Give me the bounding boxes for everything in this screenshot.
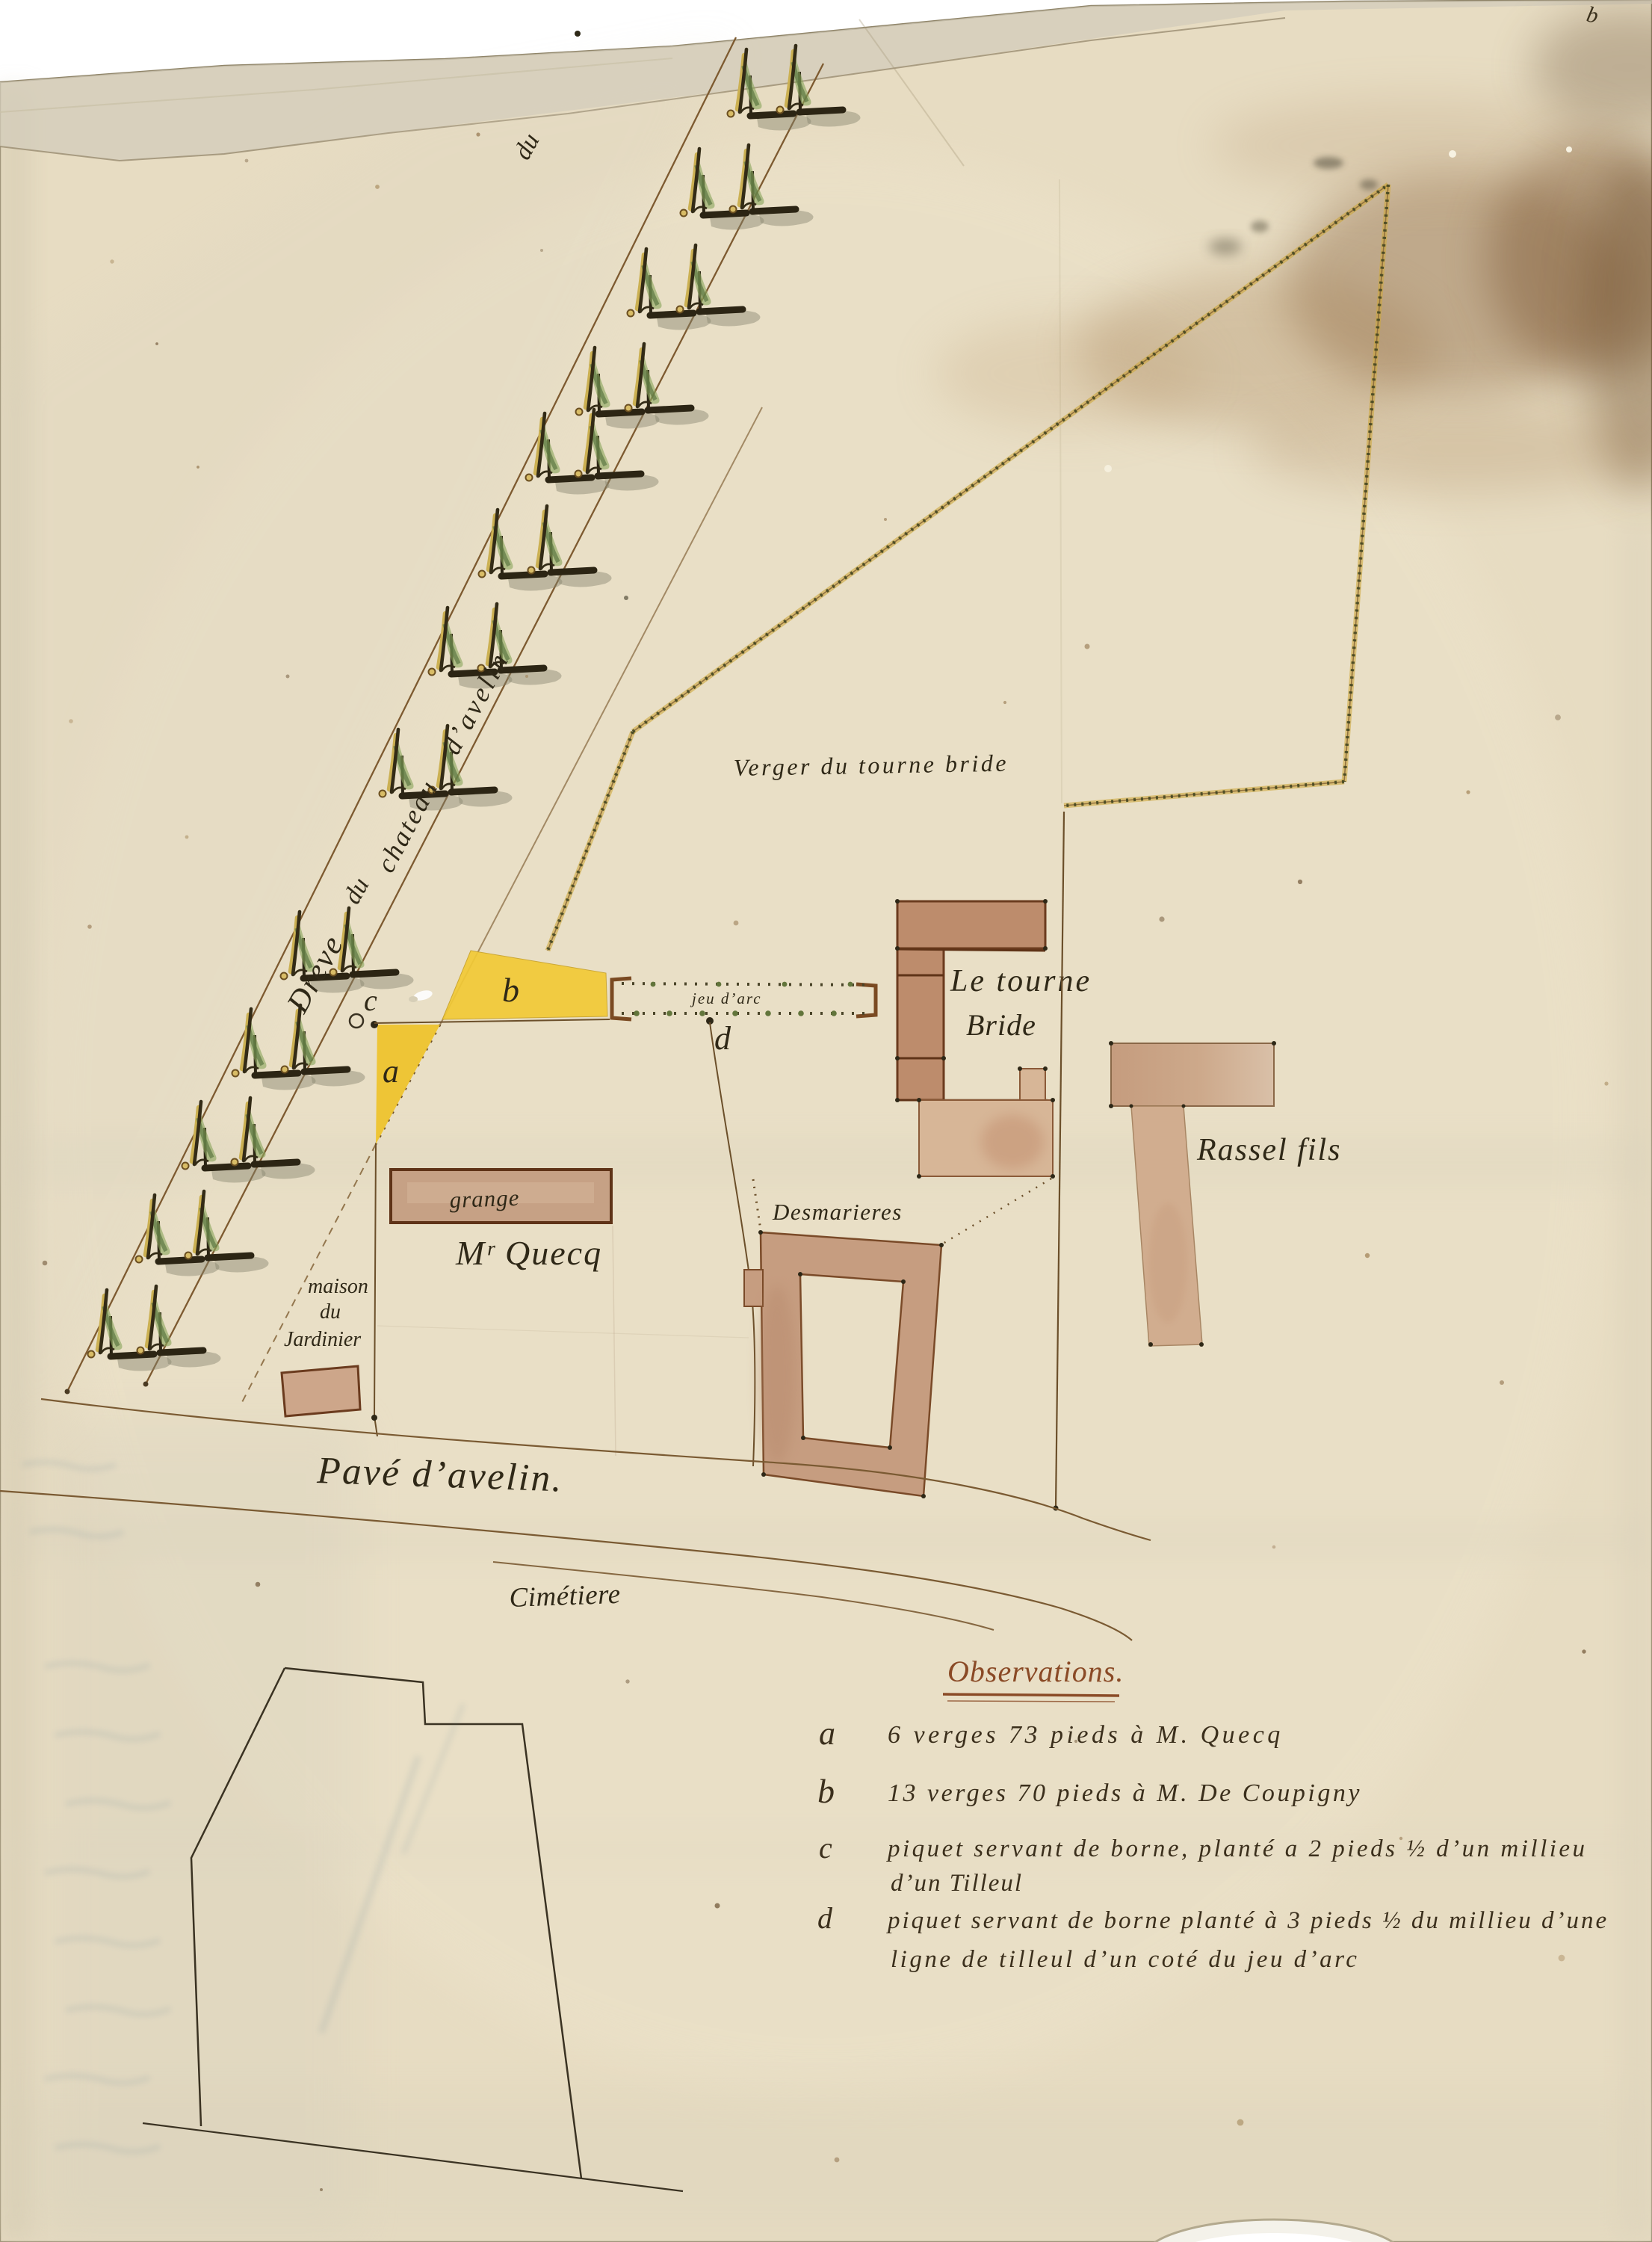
svg-text:d: d [817, 1901, 833, 1935]
svg-text:Rassel fils: Rassel fils [1196, 1133, 1342, 1167]
svg-text:a: a [383, 1053, 399, 1090]
svg-text:piquet servant de borne, plant: piquet servant de borne, planté a 2 pied… [886, 1835, 1588, 1862]
svg-text:Pavé d’avelin.: Pavé d’avelin. [316, 1450, 564, 1501]
svg-text:13 verges 70 pieds à M. De Cou: 13 verges 70 pieds à M. De Coupigny [888, 1779, 1362, 1807]
svg-text:Bride: Bride [966, 1008, 1036, 1042]
svg-text:Cimétiere: Cimétiere [509, 1579, 621, 1613]
svg-text:du: du [320, 1300, 341, 1324]
svg-text:maison: maison [308, 1275, 368, 1298]
svg-text:a: a [819, 1715, 835, 1752]
svg-text:grange: grange [449, 1185, 520, 1213]
svg-text:6 verges 73 pieds à M. Quecq: 6 verges 73 pieds à M. Quecq [888, 1721, 1284, 1749]
svg-text:c: c [819, 1831, 832, 1865]
svg-text:jeu d’arc: jeu d’arc [690, 989, 762, 1007]
svg-text:c: c [364, 983, 377, 1017]
svg-text:b: b [817, 1772, 835, 1810]
svg-text:b: b [502, 971, 519, 1009]
svg-text:piquet servant de borne planté: piquet servant de borne planté à 3 pieds… [886, 1907, 1609, 1934]
svg-text:ligne de tilleul d’un coté du: ligne de tilleul d’un coté du jeu d’arc [891, 1946, 1359, 1973]
svg-text:d’un Tilleul: d’un Tilleul [891, 1870, 1023, 1897]
svg-text:Le tourne: Le tourne [950, 964, 1092, 998]
svg-text:Observations.: Observations. [947, 1655, 1124, 1688]
svg-text:d: d [714, 1020, 731, 1057]
svg-text:Jardinier: Jardinier [284, 1328, 361, 1351]
svg-text:Mʳ Quecq: Mʳ Quecq [455, 1234, 602, 1272]
svg-text:Verger du tourne bride: Verger du tourne bride [733, 750, 1009, 781]
svg-text:Desmarieres: Desmarieres [772, 1199, 903, 1225]
